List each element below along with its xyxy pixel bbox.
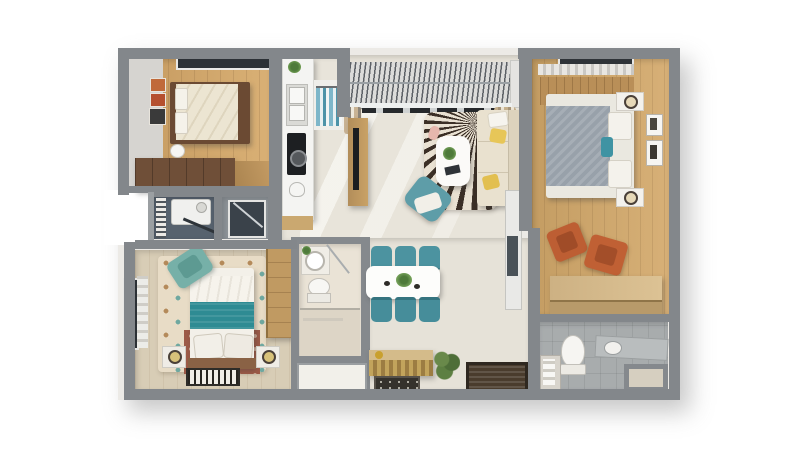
- bedroom-2-lamp-right: [262, 350, 276, 364]
- wall-left-upper: [118, 48, 129, 195]
- bedroom-1-pillow-top: [175, 88, 188, 110]
- floor-plan-scene: [0, 0, 800, 450]
- master-lamp-bottom: [624, 191, 638, 205]
- master-pillow-bottom: [608, 160, 632, 188]
- bedroom-1-art-frame-orange: [150, 78, 166, 92]
- washer-controls: [196, 202, 207, 213]
- wall-closet-right: [337, 55, 350, 117]
- kitchen-kettle: [289, 182, 305, 197]
- wall-bedroom-1-right: [269, 55, 282, 195]
- master-wall-frame-2-art: [650, 145, 657, 159]
- wall-laundry-left: [148, 192, 154, 244]
- master-lamp-top: [624, 95, 638, 109]
- wall-bedroom-2-top: [135, 240, 297, 249]
- tv-screen: [353, 128, 359, 190]
- master-pillow-top: [608, 112, 632, 140]
- sideboard-gold-front: [369, 360, 433, 376]
- bedroom-1-art-frame-dark: [149, 108, 166, 125]
- wall-dining-master: [528, 228, 540, 393]
- storage-bench-top: [550, 276, 662, 302]
- kitchen-counter-end-wood: [282, 216, 313, 230]
- drying-rack: [156, 198, 166, 238]
- bedroom-1-pillow-bottom: [175, 112, 188, 134]
- wall-laundry-right: [268, 192, 282, 244]
- wall-living-master: [519, 55, 532, 231]
- kitchen-pot: [290, 150, 307, 167]
- master-teal-pillow: [601, 137, 613, 157]
- kitchen-sink-basin-1: [289, 87, 305, 104]
- master-toilet-tank: [560, 364, 586, 375]
- hall-mirror: [507, 236, 518, 276]
- wall-right: [669, 48, 680, 400]
- bedroom-2-lamp-left: [168, 350, 182, 364]
- wall-left-lower: [124, 242, 135, 400]
- shower-glass-box: [228, 200, 266, 238]
- sofa-seat-line-2: [478, 172, 508, 173]
- wall-master-bath-top: [532, 314, 669, 322]
- dining-table-item-2: [414, 284, 420, 289]
- bedroom-2-pillow-right: [223, 333, 254, 360]
- dining-chair-bottom-2: [395, 297, 416, 322]
- dining-table-item-1: [384, 281, 390, 286]
- bedroom-1-art-frame-red: [150, 93, 166, 107]
- bathroom-1-shower-floor: [300, 308, 360, 356]
- dining-centerpiece-plant: [396, 273, 412, 287]
- shelf-bottles: [543, 359, 555, 385]
- bedroom-2-duvet-white: [190, 276, 254, 304]
- bathroom-niche-interior: [629, 369, 663, 387]
- wall-top-left: [118, 48, 350, 59]
- kitchen-plant: [288, 61, 301, 73]
- sofa-yellow-pillow-top: [489, 128, 507, 145]
- wall-bottom: [124, 389, 680, 400]
- sideboard-vase: [375, 351, 383, 359]
- master-wall-frame-1-art: [650, 118, 657, 130]
- bedroom-2-striped-mat: [186, 368, 240, 386]
- potted-plant: [432, 348, 460, 380]
- wall-top-master: [518, 48, 680, 59]
- sofa-white-pillow: [487, 111, 509, 129]
- bathroom-1-plant: [302, 246, 311, 255]
- balcony-louver-divider: [345, 82, 513, 84]
- wall-laundry-mid: [214, 196, 222, 242]
- bathroom-1-toilet-tank: [307, 293, 331, 303]
- master-curtain: [538, 64, 634, 75]
- master-vanity-sink: [604, 341, 622, 355]
- dining-chair-bottom-1: [371, 297, 392, 322]
- kitchen-sink-basin-2: [289, 105, 305, 121]
- coffee-table: [436, 136, 470, 186]
- bedroom-1-side-table: [170, 144, 185, 158]
- bedroom-2-pillow-left: [193, 333, 224, 361]
- dining-chair-bottom-3: [419, 297, 440, 322]
- exterior-notch: [104, 190, 148, 245]
- bedroom-2-curtain: [137, 276, 148, 348]
- bathroom-1-shower-rail: [303, 318, 343, 321]
- coffee-table-plant: [443, 147, 456, 160]
- bedroom-2-teal-blanket: [190, 302, 254, 329]
- master-toilet-bowl: [561, 335, 585, 367]
